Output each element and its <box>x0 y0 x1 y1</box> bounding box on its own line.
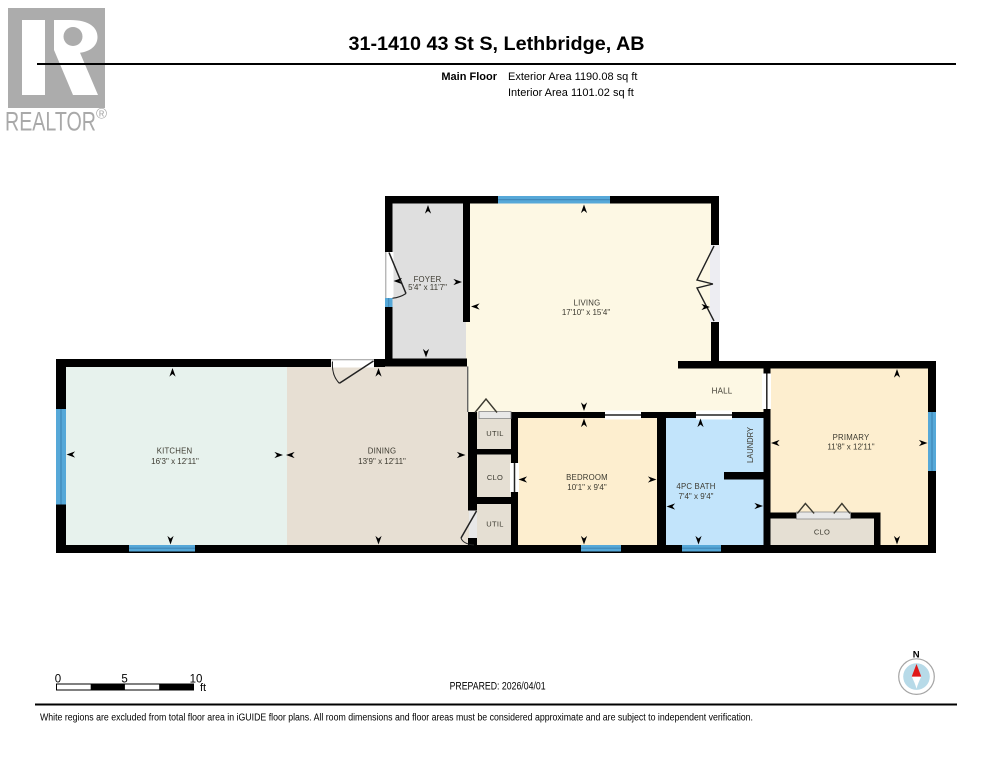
svg-text:PREPARED: 2026/04/01: PREPARED: 2026/04/01 <box>450 681 546 693</box>
svg-text:0: 0 <box>55 674 61 686</box>
svg-text:5'4" x 11'7": 5'4" x 11'7" <box>408 283 447 292</box>
svg-text:BEDROOM: BEDROOM <box>566 473 608 482</box>
svg-text:CLO: CLO <box>487 473 503 482</box>
svg-text:10'1" x 9'4": 10'1" x 9'4" <box>567 483 607 492</box>
svg-text:4PC BATH: 4PC BATH <box>676 482 715 491</box>
svg-text:PRIMARY: PRIMARY <box>833 433 870 442</box>
svg-text:DINING: DINING <box>368 447 397 456</box>
svg-text:KITCHEN: KITCHEN <box>157 447 193 456</box>
svg-text:HALL: HALL <box>712 387 733 396</box>
svg-text:11'8" x 12'11": 11'8" x 12'11" <box>827 443 874 452</box>
svg-text:N: N <box>913 650 920 661</box>
svg-text:ft: ft <box>200 682 206 694</box>
svg-text:17'10" x 15'4": 17'10" x 15'4" <box>562 308 610 317</box>
svg-text:7'4" x 9'4": 7'4" x 9'4" <box>679 492 714 501</box>
svg-text:LIVING: LIVING <box>574 299 601 308</box>
svg-text:16'3" x 12'11": 16'3" x 12'11" <box>151 457 199 466</box>
svg-text:LAUNDRY: LAUNDRY <box>746 427 755 463</box>
svg-text:CLO: CLO <box>814 528 830 537</box>
svg-text:13'9" x 12'11": 13'9" x 12'11" <box>358 457 406 466</box>
svg-text:5: 5 <box>121 674 127 686</box>
svg-text:UTIL: UTIL <box>486 520 503 529</box>
svg-text:UTIL: UTIL <box>486 429 503 438</box>
svg-text:White regions are excluded fro: White regions are excluded from total fl… <box>40 713 753 724</box>
